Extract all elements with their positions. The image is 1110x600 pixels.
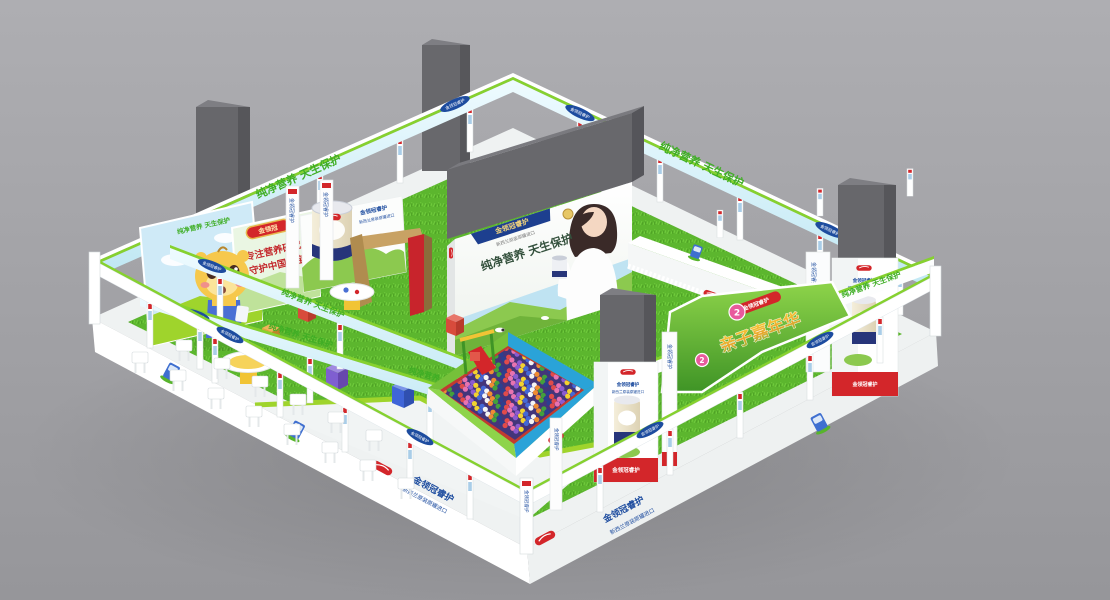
pit-ball [509, 357, 514, 362]
vertical-sign-post: 金领冠睿护 [286, 186, 299, 288]
can-band [852, 332, 876, 344]
pit-ball [529, 374, 534, 379]
pit-ball [504, 359, 509, 364]
wrap-red-base-text: 金领冠睿护 [851, 381, 877, 388]
mascot-held-item [235, 305, 249, 323]
pit-ball [550, 403, 555, 408]
pit-ball [554, 388, 559, 393]
pit-ball [517, 400, 522, 405]
pit-ball [548, 380, 553, 385]
pit-ball [565, 394, 570, 399]
pit-ball [502, 409, 507, 414]
post-vertical-text: 金领冠睿护 [288, 198, 295, 223]
pit-ball [458, 392, 463, 397]
pit-ball [463, 387, 468, 392]
pit-ball [534, 404, 539, 409]
post-red-mark [322, 183, 331, 188]
table-item [355, 290, 359, 294]
backdrop-gray-side [632, 106, 644, 182]
pit-ball [518, 413, 523, 418]
arch-red-panel [408, 234, 424, 316]
vertical-sign-post: 金领冠睿护 [320, 180, 333, 280]
pit-ball [492, 417, 497, 422]
pit-ball [513, 374, 518, 379]
pit-ball [543, 382, 548, 387]
held-can-band [552, 271, 567, 277]
pit-ball [497, 415, 502, 420]
pit-ball [524, 380, 529, 385]
pit-ball [503, 423, 508, 428]
pit-ball [472, 401, 477, 406]
pit-ball [514, 383, 519, 388]
pit-ball [544, 396, 549, 401]
pit-ball [498, 397, 503, 402]
post-vertical-text: 金领冠睿护 [523, 490, 530, 513]
pit-ball [507, 408, 512, 413]
pit-ball [555, 401, 560, 406]
pit-ball [508, 421, 513, 426]
pit-ball [513, 429, 518, 434]
can-lid [614, 396, 640, 405]
post-red-mark [288, 189, 297, 194]
panel-cow-spot [501, 329, 504, 332]
pit-ball [538, 388, 543, 393]
stool-cube [446, 314, 464, 336]
pillar-front [838, 185, 884, 268]
corner-post-right [930, 266, 941, 336]
pit-ball [468, 385, 473, 390]
mascot-ear [237, 250, 249, 262]
pit-ball [513, 415, 518, 420]
post-vertical-text: 金领冠睿护 [553, 428, 560, 451]
pit-ball [478, 409, 483, 414]
pit-ball [523, 398, 528, 403]
pit-ball [519, 427, 524, 432]
pit-ball [528, 405, 533, 410]
pillar-front [600, 295, 644, 368]
slide-box [470, 352, 480, 361]
pit-ball [503, 378, 508, 383]
pit-ball [488, 401, 493, 406]
pit-ball [484, 375, 489, 380]
pit-ball [534, 372, 539, 377]
marker-text: 2 [699, 356, 704, 365]
pit-ball [478, 377, 483, 382]
pit-ball [492, 385, 497, 390]
pit-ball [544, 409, 549, 414]
pit-ball [467, 403, 472, 408]
corner-post-left [89, 252, 100, 324]
booth-render-stage: 金领冠睿护 新西兰原装原罐进口 金领冠睿护 新西兰原装原罐进口 纯净营养 天生保… [0, 0, 1110, 600]
mascot-cheek [201, 282, 210, 288]
pit-ball [487, 391, 492, 396]
panel-cow [541, 316, 549, 320]
pillar-side [884, 185, 896, 268]
pit-ball [549, 394, 554, 399]
pit-ball [498, 384, 503, 389]
marker-text: 2 [734, 309, 740, 319]
pit-ball [453, 394, 458, 399]
exhibition-booth-render: 金领冠睿护 新西兰原装原罐进口 金领冠睿护 新西兰原装原罐进口 纯净营养 天生保… [0, 0, 1110, 600]
pit-ball [534, 417, 539, 422]
pit-ball [533, 390, 538, 395]
pit-ball [523, 366, 528, 371]
pit-ball [519, 381, 524, 386]
pit-ball [508, 376, 513, 381]
pit-ball [503, 391, 508, 396]
pit-ball [559, 386, 564, 391]
wrap-landscape [844, 354, 872, 366]
post-red-mark [522, 481, 531, 486]
pit-ball [493, 399, 498, 404]
wrap-badge-sub: 新西兰原装原罐进口 [612, 389, 645, 394]
carnival-marker-2: 2 [696, 354, 709, 367]
pit-ball [518, 368, 523, 373]
post-vertical-text: 金领冠睿护 [666, 344, 673, 369]
pit-ball [483, 407, 488, 412]
pit-ball [524, 421, 529, 426]
medal [563, 209, 573, 219]
wrap-badge-text: 金领冠睿护 [616, 381, 640, 388]
corner-post-front: 金领冠睿护 [520, 478, 533, 554]
pit-ball [473, 383, 478, 388]
pit-ball [529, 419, 534, 424]
wrap-red-base-text: 金领冠睿护 [611, 466, 640, 474]
table-top [330, 284, 374, 301]
arch-right-edge [424, 234, 432, 312]
table-item [343, 287, 348, 292]
can-oval [618, 411, 636, 426]
pillar-side [644, 295, 656, 368]
pit-ball [528, 392, 533, 397]
pit-ball [482, 393, 487, 398]
carnival-marker-2: 2 [729, 304, 745, 320]
pit-ball [477, 395, 482, 400]
pit-ball [539, 398, 544, 403]
pit-ball [539, 411, 544, 416]
pit-ball [509, 389, 514, 394]
pit-ball [499, 365, 504, 370]
vertical-sign-post: 金领冠睿护 [550, 418, 562, 510]
post-vertical-text: 金领冠睿护 [322, 192, 329, 217]
held-can-lid [552, 256, 567, 261]
pit-ball [512, 406, 517, 411]
pit-ball [523, 411, 528, 416]
